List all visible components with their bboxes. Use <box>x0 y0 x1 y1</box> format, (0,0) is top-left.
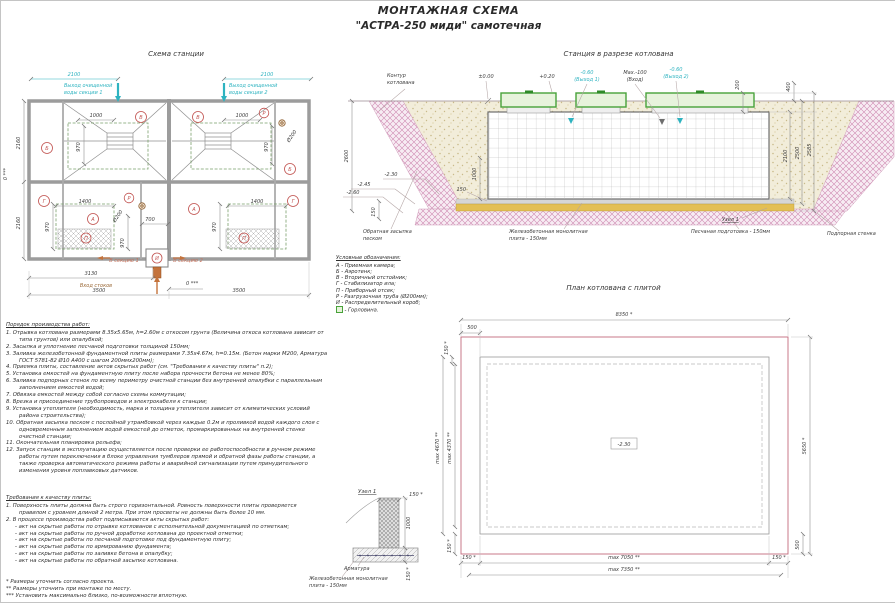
tag-a-right: А <box>191 207 196 213</box>
dim-1400-right: 1400 <box>251 199 264 205</box>
work-order-item: 1. Отрывка котлована размерами 8.35х5.65… <box>6 330 328 344</box>
backfill-label-l1: Обратная засыпка <box>363 229 412 235</box>
dim-8350: 8350 * <box>616 312 633 318</box>
work-order-item: 4. Приемка плиты, составление актов скры… <box>6 364 328 371</box>
tag-a-left: А <box>90 217 95 223</box>
dim-2585: 2585 <box>807 144 813 157</box>
level-260: -2.60 <box>347 190 360 196</box>
footnote: * Размеры уточнить согласно проекта. <box>6 579 246 586</box>
dim-150-layers: 150 <box>371 207 377 217</box>
tag-p-right: П <box>242 236 246 242</box>
pit-contour-label-l1: Контур <box>387 73 406 79</box>
dim-500-right: 500 <box>795 540 801 550</box>
backfill-label-l2: песком <box>363 236 382 242</box>
dim-2100-left: 2100 <box>68 72 81 78</box>
station-plan-title: Схема станции <box>96 50 256 58</box>
work-order-item: 11. Окончательная планировка рельефа; <box>6 440 328 447</box>
work-order-item: 12. Запуск станции в эксплуатацию осущес… <box>6 447 328 475</box>
node1-ref-label: Узел 1 <box>722 217 739 223</box>
dim-2600: 2600 <box>344 150 350 163</box>
tag-v-left: В <box>139 115 143 121</box>
quality-item: 2. В процессе производства работ подписы… <box>6 517 306 524</box>
dim-2160-bottom: 2160 <box>16 217 22 230</box>
work-order-item: 3. Заливка железобетонной фундаментной п… <box>6 351 328 365</box>
dim-1000-right: 1000 <box>236 113 249 119</box>
work-order-item: 8. Врезка и присоединение трубопроводов … <box>6 399 328 406</box>
node-dim-150-top: 150 * <box>409 492 423 498</box>
dim-7350: max 7350 ** <box>608 567 640 573</box>
footnote: *** Установить максимально близко, по-во… <box>6 593 246 600</box>
dim-2160-top: 2160 <box>16 137 22 150</box>
dim-970-mid: 970 <box>120 238 126 248</box>
level-230: -2.30 <box>385 172 398 178</box>
plate-label-l2: плита - 150мм <box>509 236 547 242</box>
sand-prep-label: Песчаная подготовка - 150мм <box>691 229 770 235</box>
outlet1-label-l1: Выход очищенной <box>64 83 113 89</box>
dim-970-bl: 970 <box>45 222 51 232</box>
quality-act: - акт на скрытые работы по песчаной подг… <box>6 537 306 544</box>
tag-r-top: Р <box>262 111 265 117</box>
node-title: Узел 1 <box>358 489 376 495</box>
dim-3130: 3130 <box>85 271 98 277</box>
quality-item: 1. Поверхность плиты должна быть строго … <box>6 503 306 517</box>
footnotes: * Размеры уточнить согласно проекта. ** … <box>6 579 246 600</box>
tag-i-center: И <box>155 256 159 262</box>
plate-label-l1: Железобетонная монолитная <box>508 229 588 235</box>
pit-plan-drawing: -2.30 8350 * 500 150 * max 4670 ** max 4… <box>431 296 895 591</box>
tag-r-mid: Р <box>127 196 130 202</box>
dim-1000-left: 1000 <box>90 113 103 119</box>
level-245: -2.45 <box>358 182 371 188</box>
tag-v-right: В <box>196 115 200 121</box>
work-order-item: 9. Установка утеплителя (необходимость, … <box>6 406 328 420</box>
level-zero-center: 0 *** <box>186 281 199 287</box>
work-order: Порядок производства работ: 1. Отрывка к… <box>6 322 328 475</box>
dim-5650: 5650 * <box>802 437 808 454</box>
neck-icon <box>336 306 343 313</box>
rebar-label: Арматура <box>343 566 370 572</box>
page-subtitle: "АСТРА-250 миди" самотечная <box>1 20 895 32</box>
node-dim-1000: 1000 <box>406 517 412 530</box>
to-section2-label: В секцию 2 <box>173 258 203 264</box>
level-020: +0.20 <box>539 74 554 80</box>
quality-act: - акт на скрытые работы по обратной засы… <box>6 558 306 565</box>
dim-150-topleft: 150 * <box>444 341 450 355</box>
inlet-level: Max.-100 <box>623 70 646 76</box>
quality-act: - акт на скрытые работы по отрывке котло… <box>6 524 306 531</box>
inlet-name: (Вход) <box>627 77 644 83</box>
drawing-sheet: МОНТАЖНАЯ СХЕМА "АСТРА-250 миди" самотеч… <box>0 0 895 603</box>
pit-plan-title: План котлована с плитой <box>531 284 696 292</box>
foundation-layers <box>456 199 794 211</box>
quality-act: - акт на скрытые работы по заливке бетон… <box>6 551 306 558</box>
dim-2100-right: 2100 <box>261 72 274 78</box>
quality-block: Требования к качеству плиты: 1. Поверхно… <box>6 495 306 565</box>
page-title: МОНТАЖНАЯ СХЕМА <box>1 4 895 17</box>
dim-2500: 2500 <box>795 147 801 160</box>
outlet2-label-l1: Выход очищенной <box>229 83 278 89</box>
tank-body <box>488 112 769 199</box>
tag-g-left: Г <box>43 199 47 205</box>
node-detail-drawing: Узел 1 150 * 1000 150 * Арматура Железоб… <box>306 481 466 602</box>
quality-act: - акт на скрытые работы по ручной дорабо… <box>6 531 306 538</box>
pit-level-230: -2.30 <box>618 442 631 448</box>
dim-4670: max 4670 ** <box>435 432 441 464</box>
dim-2100: 2100 <box>783 150 789 163</box>
footnote: ** Размеры уточнить при монтаже по месту… <box>6 586 246 593</box>
outlet2-label-l2: воды секции 2 <box>229 90 268 96</box>
level-0: ±0.00 <box>478 74 493 80</box>
work-order-item: 6. Заливка подпорных стенок по всему пер… <box>6 378 328 392</box>
dim-1400-left: 1400 <box>79 199 92 205</box>
tag-p-left: П <box>84 236 88 242</box>
dim-3500-right: 3500 <box>233 288 246 294</box>
dim-1000: 1000 <box>472 168 478 181</box>
work-order-item: 10. Обратная засыпка песком с послойной … <box>6 420 328 441</box>
outlet2-name: (Выход 2) <box>663 74 689 80</box>
slope-line <box>346 498 379 523</box>
node-plate-label-l2: плита - 150мм <box>309 583 347 589</box>
dim-7050: max 7050 ** <box>608 555 640 561</box>
dim-150-plate: 150 <box>456 187 466 193</box>
tag-g-right: Г <box>292 199 296 205</box>
dim-4370: max 4370 ** <box>447 432 453 464</box>
tag-b-right: Б <box>288 167 292 173</box>
dim-pipe-top: Ø200 <box>284 129 298 145</box>
cross-section-drawing: Контур котлована ±0.00 +0.20 -0.60 (Выхо… <box>339 61 895 261</box>
outlet1-level: -0.60 <box>581 70 594 76</box>
dim-pipe-mid: Ø200 <box>110 209 124 225</box>
to-section1-label: В секцию 1 <box>109 258 139 264</box>
station-plan-drawing: 2100 2100 Выход очищенной воды секции 1 … <box>1 66 336 311</box>
tag-b-left: Б <box>45 146 49 152</box>
outlet1-name: (Выход 1) <box>574 77 600 83</box>
work-order-item: 2. Засыпка и уплотнение песчаной подгото… <box>6 344 328 351</box>
level-zero-left: 0 *** <box>3 167 9 180</box>
work-order-item: 7. Обвязка емкостей между собой согласно… <box>6 392 328 399</box>
work-order-item: 5. Установка емкостей на фундаментную пл… <box>6 371 328 378</box>
inlet-arrow <box>154 276 160 294</box>
outlet1-label-l2: воды секции 1 <box>64 90 103 96</box>
dim-200: 200 <box>735 80 741 90</box>
dim-150-br: 150 * <box>772 555 786 561</box>
pit-contour-label-l2: котлована <box>387 80 415 86</box>
dim-970-tl: 970 <box>76 142 82 152</box>
dim-400: 400 <box>786 82 792 92</box>
quality-title: Требования к качеству плиты: <box>6 495 306 502</box>
work-order-title: Порядок производства работ: <box>6 322 328 329</box>
node-plate-label-l1: Железобетонная монолитная <box>308 576 388 582</box>
inlet-label: Вход стоков <box>80 283 112 289</box>
dim-970-tr: 970 <box>264 142 270 152</box>
node-dim-150-plate: 150 * <box>406 567 412 581</box>
cross-section-title: Станция в разрезе котлована <box>531 50 706 58</box>
legend-title: Условные обозначения: <box>336 255 496 261</box>
quality-act: - акт на скрытые работы по армированию ф… <box>6 544 306 551</box>
outlet2-level: -0.60 <box>670 67 683 73</box>
retaining-wall-section <box>379 498 399 548</box>
dim-970-br: 970 <box>212 222 218 232</box>
retaining-wall-label: Подпорная стенка <box>827 231 876 237</box>
plan-dim-lines <box>24 101 309 299</box>
dim-700: 700 <box>145 217 155 223</box>
dim-500-top: 500 <box>467 325 477 331</box>
